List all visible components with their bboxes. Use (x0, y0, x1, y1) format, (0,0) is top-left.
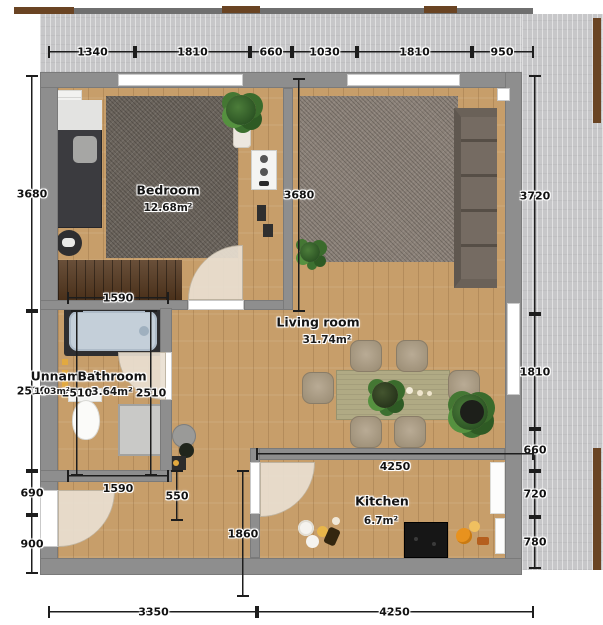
living-room-area: 31.74m² (303, 334, 352, 346)
plant-pot-dark (460, 400, 484, 424)
bedroom-area: 12.68m² (144, 202, 193, 214)
kitchen-label: Kitchen (355, 494, 409, 509)
appliance-knob (260, 155, 268, 163)
window-living-east[interactable] (507, 303, 520, 395)
candle (417, 390, 423, 396)
dim-unnamed-height: 2510 (71, 310, 83, 476)
dim-top-6: 950 (470, 46, 534, 58)
floor-plan: 1340 1810 660 1030 1810 950 3680 2510 69… (0, 0, 603, 625)
dining-chair[interactable] (396, 340, 428, 372)
bedroom-label: Bedroom (136, 183, 199, 198)
window-corner[interactable] (497, 88, 510, 101)
bathroom-label: Bathroom (77, 369, 146, 384)
dining-chair[interactable] (394, 416, 426, 448)
candle (406, 387, 413, 394)
dim-right-1: 3720 (529, 75, 541, 316)
sofa[interactable] (454, 108, 497, 288)
plate (306, 535, 319, 548)
appliance-handle (259, 181, 269, 186)
dim-top-1: 1340 (48, 46, 137, 58)
dim-living-height: 3680 (293, 78, 305, 312)
bedroom-plant[interactable] (226, 95, 256, 125)
plate (298, 520, 314, 536)
dim-closet-width: 1590 (67, 292, 169, 304)
railing-wood-segment (593, 448, 601, 570)
dim-hall-width: 1590 (67, 470, 169, 482)
dim-left-3: 690 (26, 469, 38, 517)
railing-wood-segment (593, 18, 601, 123)
candle (427, 391, 432, 396)
dining-chair[interactable] (302, 372, 334, 404)
kitchen-cabinet[interactable] (490, 462, 505, 514)
living-room-rug[interactable] (300, 96, 458, 262)
kitchen-door-gap[interactable] (250, 462, 260, 514)
dim-left-1: 3680 (26, 75, 38, 313)
bed[interactable] (56, 100, 102, 228)
dim-top-2: 1810 (133, 46, 252, 58)
appliance-column[interactable] (251, 150, 277, 190)
dim-right-2: 1810 (529, 312, 541, 431)
balcony-floor-top (40, 14, 603, 72)
window-living[interactable] (347, 74, 460, 86)
dim-hall-kitchen-gap: 550 (171, 470, 183, 521)
cup (332, 517, 340, 525)
bedroom-door-gap[interactable] (188, 300, 244, 310)
railing-wood-segment (222, 6, 260, 13)
appliance-knob (260, 168, 268, 176)
wall-bottom[interactable] (40, 558, 522, 575)
dining-chair[interactable] (350, 416, 382, 448)
unnamed-room-area: 1.03m² (34, 387, 70, 397)
kitchen-area: 6.7m² (364, 515, 398, 527)
dim-bottom-2: 4250 (255, 606, 534, 618)
dim-top-5: 1810 (355, 46, 474, 58)
burner (414, 537, 418, 541)
dim-top-4: 1030 (290, 46, 359, 58)
balcony-railing (55, 8, 533, 14)
bathroom-area: 3.64m² (91, 386, 132, 398)
light-switch[interactable] (257, 205, 266, 221)
living-room-label: Living room (276, 315, 359, 330)
dim-kitchen-width: 4250 (256, 448, 534, 460)
window-bedroom[interactable] (118, 74, 243, 86)
dim-bottom-1: 3350 (48, 606, 259, 618)
orange (456, 528, 472, 544)
bed-pillow (73, 136, 97, 163)
stove-cooktop[interactable] (404, 522, 448, 558)
bedroom-rug[interactable] (106, 96, 238, 258)
dim-left-4: 900 (26, 513, 38, 574)
stool-cloth (62, 238, 75, 247)
railing-wood-segment (14, 7, 74, 14)
bed-headboard (56, 100, 102, 130)
light-switch[interactable] (263, 224, 273, 237)
dim-top-3: 660 (248, 46, 294, 58)
dining-chair[interactable] (350, 340, 382, 372)
bedroom-stool[interactable] (56, 230, 82, 256)
dim-kitchen-height: 1860 (237, 470, 249, 597)
orange (469, 521, 480, 532)
spice-jars (477, 537, 489, 545)
decor-dot (173, 460, 179, 466)
burner (432, 542, 436, 546)
railing-wood-segment (424, 6, 457, 13)
kitchen-cabinet[interactable] (495, 518, 505, 554)
dim-right-5: 780 (529, 515, 541, 569)
dim-bathroom-height: 2510 (145, 310, 157, 476)
table-centerpiece-plant[interactable] (372, 382, 398, 408)
dim-right-4: 720 (529, 469, 541, 519)
